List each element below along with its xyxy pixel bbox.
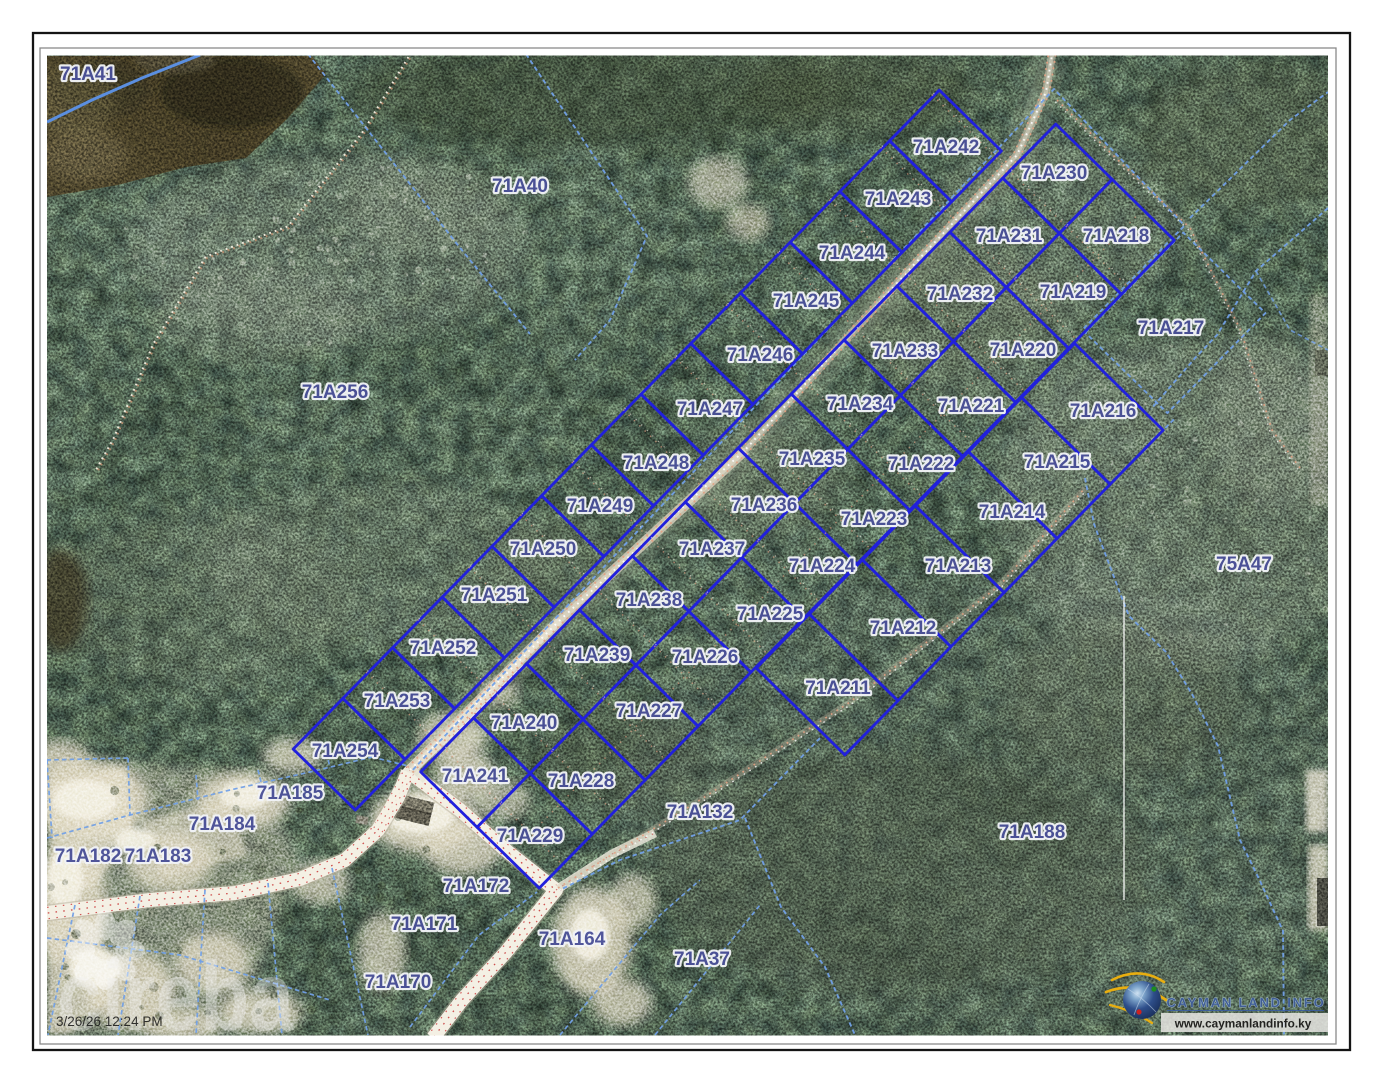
svg-text:71A236: 71A236 <box>731 495 798 516</box>
svg-text:71A215: 71A215 <box>1024 452 1091 473</box>
svg-text:71A235: 71A235 <box>779 449 846 470</box>
svg-text:75A47: 75A47 <box>1216 554 1272 575</box>
svg-text:71A253: 71A253 <box>364 691 431 712</box>
svg-text:71A240: 71A240 <box>491 713 558 734</box>
svg-text:71A41: 71A41 <box>60 64 116 85</box>
svg-text:71A238: 71A238 <box>616 590 683 611</box>
svg-text:71A256: 71A256 <box>302 382 369 403</box>
svg-text:71A239: 71A239 <box>564 645 631 666</box>
svg-text:71A219: 71A219 <box>1040 282 1107 303</box>
svg-text:71A228: 71A228 <box>548 771 615 792</box>
svg-text:3/26/26 12:24 PM: 3/26/26 12:24 PM <box>56 1014 163 1029</box>
svg-text:71A164: 71A164 <box>539 929 606 950</box>
svg-text:71A214: 71A214 <box>979 502 1046 523</box>
svg-text:71A225: 71A225 <box>737 604 804 625</box>
svg-text:71A222: 71A222 <box>888 454 955 475</box>
svg-text:71A183: 71A183 <box>125 846 192 867</box>
svg-text:71A248: 71A248 <box>623 453 690 474</box>
svg-text:71A213: 71A213 <box>925 556 992 577</box>
svg-text:71A132: 71A132 <box>667 802 734 823</box>
svg-text:71A226: 71A226 <box>672 647 739 668</box>
svg-text:71A251: 71A251 <box>461 585 528 606</box>
svg-text:71A223: 71A223 <box>841 509 908 530</box>
svg-text:71A245: 71A245 <box>773 291 840 312</box>
svg-text:71A242: 71A242 <box>913 137 980 158</box>
svg-text:71A247: 71A247 <box>677 399 744 420</box>
svg-text:CAYMAN LAND INFO: CAYMAN LAND INFO <box>1166 995 1325 1010</box>
svg-text:71A212: 71A212 <box>870 618 937 639</box>
svg-text:71A172: 71A172 <box>443 876 510 897</box>
svg-text:71A182: 71A182 <box>55 846 122 867</box>
svg-text:71A170: 71A170 <box>365 972 432 993</box>
svg-text:71A233: 71A233 <box>872 341 939 362</box>
svg-text:cireba: cireba <box>57 941 295 1051</box>
svg-text:71A211: 71A211 <box>805 678 871 699</box>
svg-text:71A230: 71A230 <box>1021 163 1088 184</box>
svg-text:71A237: 71A237 <box>679 539 746 560</box>
svg-text:71A246: 71A246 <box>727 345 794 366</box>
svg-text:71A184: 71A184 <box>189 814 256 835</box>
svg-text:71A218: 71A218 <box>1083 226 1150 247</box>
svg-text:www.caymanlandinfo.ky: www.caymanlandinfo.ky <box>1174 1017 1312 1031</box>
svg-text:71A241: 71A241 <box>442 766 509 787</box>
svg-text:71A229: 71A229 <box>497 826 564 847</box>
svg-text:71A244: 71A244 <box>819 243 886 264</box>
svg-text:71A185: 71A185 <box>257 783 324 804</box>
svg-text:71A231: 71A231 <box>976 226 1043 247</box>
svg-text:71A243: 71A243 <box>865 189 932 210</box>
svg-text:71A221: 71A221 <box>938 396 1005 417</box>
svg-text:71A217: 71A217 <box>1138 318 1205 339</box>
svg-text:71A220: 71A220 <box>990 340 1057 361</box>
svg-text:71A216: 71A216 <box>1070 401 1137 422</box>
svg-text:71A227: 71A227 <box>616 701 683 722</box>
svg-text:71A254: 71A254 <box>312 741 379 762</box>
svg-text:71A224: 71A224 <box>789 556 856 577</box>
svg-text:71A37: 71A37 <box>674 949 730 970</box>
svg-text:71A171: 71A171 <box>391 914 458 935</box>
svg-text:71A234: 71A234 <box>827 394 894 415</box>
svg-text:71A249: 71A249 <box>567 496 634 517</box>
svg-text:71A250: 71A250 <box>510 539 577 560</box>
svg-text:71A252: 71A252 <box>410 638 477 659</box>
svg-text:71A188: 71A188 <box>999 822 1066 843</box>
svg-text:71A40: 71A40 <box>492 176 548 197</box>
svg-text:71A232: 71A232 <box>927 284 994 305</box>
